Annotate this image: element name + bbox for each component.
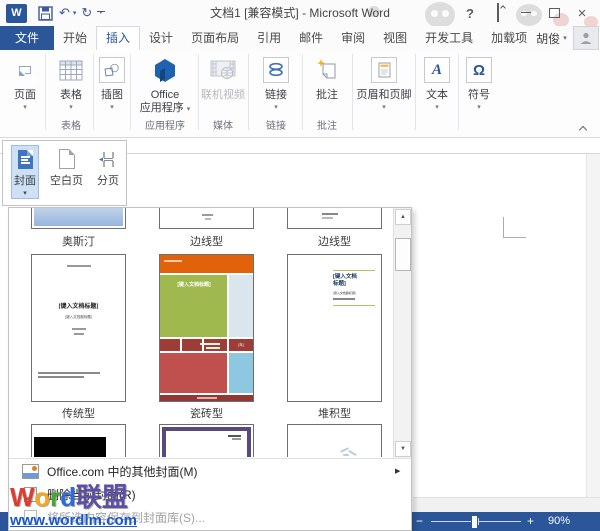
text-button[interactable]: A 文本 ▾	[417, 53, 457, 112]
collapse-ribbon-icon[interactable]	[579, 124, 588, 133]
caret-down-icon: ▾	[4, 104, 46, 112]
links-button[interactable]: 链接 ▾	[252, 53, 300, 112]
table-group-label: 表格	[50, 121, 92, 133]
user-name: 胡俊	[536, 30, 560, 47]
floral-decoration	[348, 450, 357, 456]
zoom-in-button[interactable]: +	[527, 512, 534, 530]
tile-side-column	[229, 275, 253, 337]
cover-title-line1: [键入文档	[333, 274, 375, 281]
cover-label: 边线型	[287, 233, 382, 249]
cover-label: 堆积型	[287, 405, 382, 421]
group-separator	[248, 54, 249, 130]
header-footer-button[interactable]: 页眉和页脚 ▾	[354, 53, 414, 112]
apps-group-label: 应用程序	[133, 121, 197, 133]
tile-segment	[204, 339, 227, 351]
cover-thumbnail-sideline-2[interactable]	[287, 208, 382, 229]
cover-thumbnail-floral[interactable]	[287, 424, 382, 457]
zoom-out-button[interactable]: −	[416, 512, 423, 530]
page-break-label: 分页	[97, 172, 119, 188]
tile-lower-block	[160, 353, 227, 393]
stacked-text-block: [键入文档 标题] [键入文档副标题]	[333, 267, 375, 309]
scroll-down-icon: ▼	[400, 446, 406, 452]
tab-design[interactable]: 设计	[140, 26, 182, 50]
tab-references[interactable]: 引用	[248, 26, 290, 50]
minimize-button[interactable]	[512, 4, 540, 22]
save-icon[interactable]	[38, 6, 53, 21]
undo-caret-icon[interactable]: ▾	[73, 9, 77, 17]
caret-down-icon: ▾	[50, 104, 92, 112]
illustrations-button[interactable]: 插图 ▾	[95, 53, 129, 112]
cover-page-label: 封面	[14, 172, 36, 188]
office-apps-button[interactable]: Office 应用程序 ▾	[133, 53, 197, 116]
group-separator	[352, 54, 353, 130]
tile-segment	[160, 339, 180, 351]
pages-button[interactable]: 页面 ▾	[4, 53, 46, 112]
group-separator	[415, 54, 416, 130]
cover-thumbnail-pinstripes[interactable]	[159, 424, 254, 457]
online-video-button: 联机视频	[200, 53, 246, 102]
new-comment-icon	[315, 58, 339, 82]
tab-mailings[interactable]: 邮件	[290, 26, 332, 50]
office-apps-icon	[152, 57, 178, 83]
header-footer-icon	[378, 62, 391, 78]
text-icon: A	[432, 62, 442, 79]
scroll-up-icon: ▲	[400, 214, 406, 220]
symbol-icon: Ω	[473, 62, 485, 79]
page-break-item[interactable]: 分页	[94, 145, 122, 190]
cover-label: 边线型	[159, 233, 254, 249]
submenu-arrow-icon: ▶	[395, 467, 400, 475]
group-separator	[302, 54, 303, 130]
cover-page-icon	[18, 150, 33, 169]
pages-icon	[19, 66, 31, 74]
ribbon-display-options-icon[interactable]	[484, 4, 512, 22]
tab-add-ins[interactable]: 加载项	[482, 26, 536, 50]
cover-year: [年]	[229, 339, 253, 351]
zoom-slider-tick	[478, 518, 479, 525]
cover-thumbnail-tile[interactable]: [键入文档标题] [年]	[159, 254, 254, 402]
horizontal-scroll-area[interactable]	[413, 497, 600, 513]
cover-thumbnail-traditional[interactable]: [键入文档标题] [键入文档副标题]	[31, 254, 126, 402]
office-com-icon	[22, 464, 39, 479]
watermark-logo: Word联盟	[10, 484, 137, 510]
cover-page-item[interactable]: 封面 ▾	[11, 145, 39, 199]
table-button[interactable]: 表格 ▾	[50, 53, 92, 112]
caret-down-icon: ▾	[23, 190, 27, 197]
cover-thumbnail-austin[interactable]	[31, 208, 126, 229]
caret-down-icon: ▾	[252, 104, 300, 112]
tab-developer[interactable]: 开发工具	[416, 26, 482, 50]
gallery-scrollbar[interactable]: ▲ ▼	[393, 208, 411, 458]
user-caret-icon: ▾	[563, 34, 567, 42]
word-logo-icon[interactable]: W	[6, 4, 27, 23]
cover-title-line2: 标题]	[333, 281, 375, 288]
close-button[interactable]: ×	[568, 5, 596, 22]
tab-file[interactable]: 文件	[0, 26, 54, 50]
zoom-slider-thumb[interactable]	[471, 515, 478, 529]
scroll-down-button[interactable]: ▼	[395, 441, 411, 457]
redo-icon[interactable]: ↻	[81, 0, 92, 26]
caret-down-icon: ▾	[187, 106, 191, 113]
caret-down-icon: ▾	[354, 104, 414, 112]
symbol-button[interactable]: Ω 符号 ▾	[459, 53, 499, 112]
vertical-scroll-area[interactable]	[586, 154, 600, 499]
menu-separator	[9, 458, 411, 459]
ribbon-tab-row: 文件 开始 插入 设计 页面布局 引用 邮件 审阅 视图 开发工具 加载项 胡俊…	[0, 26, 600, 50]
media-group-label: 媒体	[200, 121, 246, 133]
scrollbar-thumb[interactable]	[395, 238, 411, 271]
cover-subtitle: [键入文档副标题]	[32, 315, 125, 320]
window-controls: ? ×	[456, 0, 596, 26]
caret-down-icon: ▾	[95, 104, 129, 112]
blank-page-icon	[59, 149, 75, 169]
menu-item-more-covers[interactable]: Office.com 中的其他封面(M)	[9, 460, 411, 483]
illustrations-icon	[104, 63, 120, 77]
tab-page-layout[interactable]: 页面布局	[182, 26, 248, 50]
floral-decoration	[343, 454, 349, 456]
watermark: Word联盟 www.wordlm.com	[10, 484, 137, 528]
cover-label: 传统型	[31, 405, 126, 421]
help-icon[interactable]: ?	[456, 6, 484, 21]
caret-down-icon: ▾	[459, 104, 499, 112]
pages-dropdown: 封面 ▾ 空白页 分页	[2, 140, 127, 206]
tab-view[interactable]: 视图	[374, 26, 416, 50]
cover-thumbnail-stacked[interactable]: [键入文档 标题] [键入文档副标题]	[287, 254, 382, 402]
cover-label: 奥斯汀	[31, 233, 126, 249]
new-comment-button[interactable]: 批注	[304, 53, 350, 102]
person-icon	[579, 31, 593, 45]
quick-access-toolbar: W ↶ ▾ ↻ ▾	[6, 0, 102, 26]
tile-blue-block	[229, 353, 253, 393]
black-banner	[34, 437, 106, 457]
menu-item-label: Office.com 中的其他封面(M)	[47, 463, 197, 480]
online-video-icon	[210, 60, 236, 80]
cover-thumbnail-motion[interactable]	[31, 424, 126, 457]
link-icon	[268, 63, 284, 77]
group-separator	[198, 54, 199, 130]
links-group-label: 链接	[252, 121, 300, 133]
maximize-button[interactable]	[540, 4, 568, 22]
cover-subtitle: [键入文档副标题]	[333, 291, 375, 295]
customize-qat-icon[interactable]: ▾	[99, 11, 102, 16]
cover-thumbnail-sideline-1[interactable]	[159, 208, 254, 229]
tile-footer	[160, 395, 253, 401]
tab-review[interactable]: 审阅	[332, 26, 374, 50]
cover-label: 瓷砖型	[159, 405, 254, 421]
watermark-url: www.wordlm.com	[10, 513, 137, 528]
purple-frame	[162, 427, 251, 457]
tab-insert[interactable]: 插入	[96, 26, 140, 50]
title-bar: 文档1 [兼容模式] - Microsoft Word W ↶ ▾ ↻ ▾ ? …	[0, 0, 600, 26]
user-account[interactable]: 胡俊 ▾	[536, 26, 600, 50]
austin-banner	[34, 208, 123, 226]
blank-page-label: 空白页	[50, 172, 83, 188]
scroll-up-button[interactable]: ▲	[395, 209, 411, 225]
zoom-level[interactable]: 90%	[548, 512, 570, 531]
cover-title: [键入文档标题]	[32, 301, 125, 310]
table-icon	[59, 60, 83, 81]
tile-segment	[182, 339, 202, 351]
tab-home[interactable]: 开始	[54, 26, 96, 50]
cover-title: [键入文档标题]	[164, 281, 224, 288]
ribbon: 页面 ▾ 表格 ▾ 表格 插图	[0, 50, 600, 138]
comment-group-label: 批注	[304, 121, 350, 133]
caret-down-icon: ▾	[417, 104, 457, 112]
word-window: 文档1 [兼容模式] - Microsoft Word W ↶ ▾ ↻ ▾ ? …	[0, 0, 600, 531]
tile-header	[160, 255, 253, 273]
group-separator	[130, 54, 131, 130]
group-separator	[93, 54, 94, 130]
avatar[interactable]	[573, 26, 599, 50]
page-break-icon	[98, 150, 118, 169]
blank-page-item[interactable]: 空白页	[47, 145, 86, 190]
undo-icon[interactable]: ↶	[59, 0, 70, 26]
margin-corner-mark	[503, 217, 526, 238]
